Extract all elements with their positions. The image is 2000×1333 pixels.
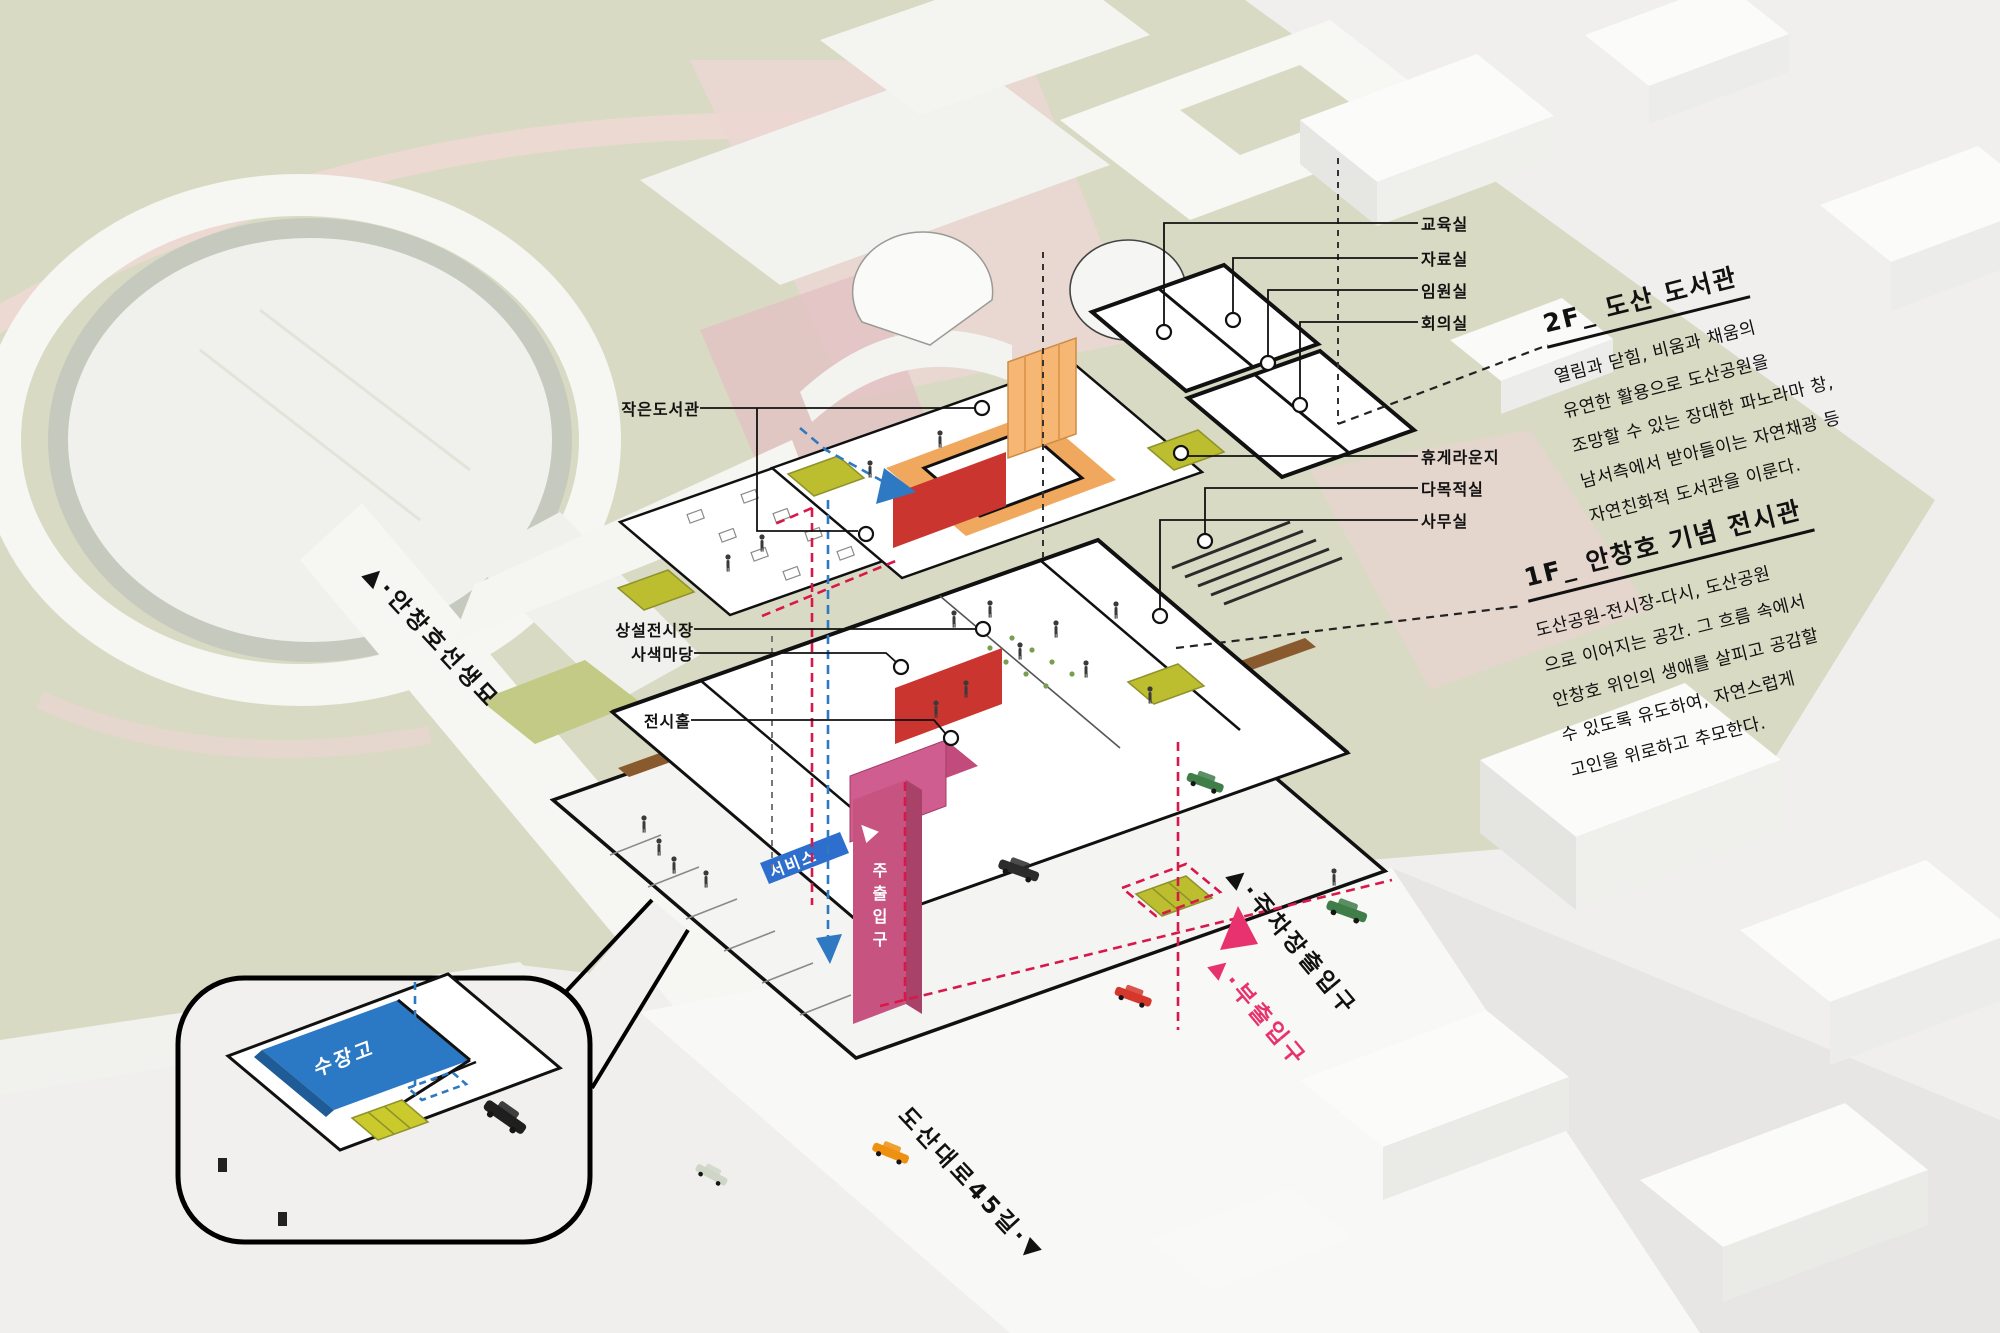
label-exhibition-hall: 전시홀 bbox=[644, 708, 691, 732]
main-entrance-sign: 주출입구 bbox=[866, 862, 890, 954]
label-lounge: 휴게라운지 bbox=[1421, 444, 1500, 468]
label-permanent-exhibition: 상설전시장 bbox=[615, 617, 694, 641]
page: { "scene": { "left_labels": ["작은도서관", "상… bbox=[0, 0, 2000, 1333]
label-meeting-room: 회의실 bbox=[1421, 310, 1468, 334]
label-executive-room: 임원실 bbox=[1421, 278, 1468, 302]
label-education-room: 교육실 bbox=[1421, 211, 1468, 235]
label-multipurpose-room: 다목적실 bbox=[1421, 476, 1484, 500]
label-small-library: 작은도서관 bbox=[621, 396, 700, 420]
label-reference-room: 자료실 bbox=[1421, 246, 1468, 270]
label-meditation-yard: 사색마당 bbox=[631, 641, 694, 665]
label-office: 사무실 bbox=[1421, 508, 1468, 532]
